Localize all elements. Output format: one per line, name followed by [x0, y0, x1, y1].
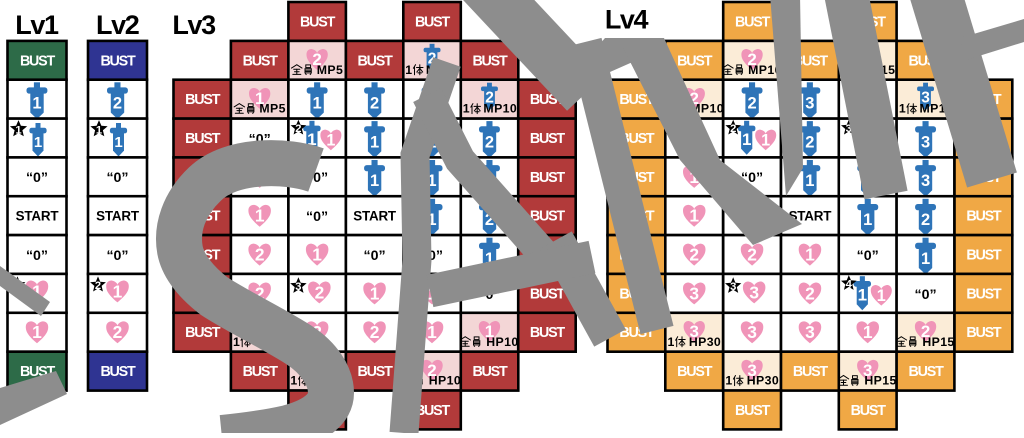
- svg-text:1: 1: [313, 95, 322, 113]
- svg-text:1: 1: [312, 245, 322, 265]
- svg-text:BUST: BUST: [243, 364, 279, 380]
- svg-text:HP10: HP10: [486, 335, 518, 349]
- svg-text:START: START: [16, 209, 60, 224]
- svg-text:1: 1: [34, 134, 42, 151]
- svg-text:3: 3: [805, 95, 814, 113]
- svg-text:BUST: BUST: [358, 364, 394, 380]
- svg-text:1: 1: [689, 206, 699, 226]
- svg-text:BUST: BUST: [793, 364, 829, 380]
- svg-text:3: 3: [749, 282, 759, 302]
- svg-text:HP30: HP30: [747, 374, 779, 388]
- svg-text:1: 1: [326, 131, 335, 149]
- svg-text:BUST: BUST: [472, 364, 508, 380]
- svg-text:1: 1: [463, 102, 470, 116]
- svg-text:2: 2: [805, 133, 814, 151]
- svg-text:BUST: BUST: [966, 248, 1002, 264]
- svg-text:BUST: BUST: [530, 131, 566, 147]
- svg-text:2: 2: [295, 123, 301, 135]
- svg-text:1: 1: [15, 124, 21, 136]
- svg-text:BUST: BUST: [100, 53, 136, 69]
- svg-text:“0”: “0”: [915, 287, 937, 303]
- svg-text:BUST: BUST: [185, 92, 221, 108]
- svg-text:BUST: BUST: [851, 403, 887, 419]
- svg-text:Lv1: Lv1: [15, 10, 59, 40]
- svg-text:BUST: BUST: [966, 286, 1002, 302]
- svg-text:HP30: HP30: [689, 335, 721, 349]
- svg-text:3: 3: [295, 281, 301, 293]
- svg-text:1: 1: [114, 134, 122, 151]
- svg-text:MP10: MP10: [483, 102, 517, 116]
- svg-text:BUST: BUST: [100, 364, 136, 380]
- svg-text:2: 2: [95, 280, 101, 292]
- svg-text:1: 1: [370, 283, 380, 303]
- svg-text:Lv3: Lv3: [172, 10, 216, 40]
- svg-text:1: 1: [863, 322, 873, 342]
- svg-text:3: 3: [689, 283, 699, 303]
- svg-text:HP15: HP15: [922, 335, 954, 349]
- svg-text:2: 2: [255, 245, 265, 265]
- svg-text:BUST: BUST: [909, 364, 945, 380]
- svg-text:“0”: “0”: [106, 248, 128, 264]
- svg-text:BUST: BUST: [735, 14, 771, 30]
- svg-text:“0”: “0”: [857, 248, 879, 264]
- svg-text:2: 2: [113, 322, 123, 342]
- svg-text:BUST: BUST: [243, 53, 279, 69]
- svg-text:1: 1: [32, 95, 41, 113]
- svg-text:2: 2: [315, 282, 325, 302]
- svg-text:START: START: [96, 209, 140, 224]
- svg-text:3: 3: [921, 133, 930, 151]
- svg-text:Lv4: Lv4: [605, 5, 649, 35]
- svg-text:3: 3: [730, 281, 736, 293]
- svg-text:1: 1: [742, 130, 751, 149]
- svg-text:2: 2: [370, 322, 380, 342]
- svg-text:BUST: BUST: [735, 403, 771, 419]
- svg-text:MP5: MP5: [317, 63, 343, 77]
- svg-text:4: 4: [846, 279, 853, 291]
- svg-text:1: 1: [858, 286, 867, 305]
- svg-text:BUST: BUST: [530, 286, 566, 302]
- svg-text:1: 1: [921, 250, 930, 268]
- svg-text:BUST: BUST: [185, 131, 221, 147]
- svg-text:BUST: BUST: [415, 14, 451, 30]
- svg-text:2: 2: [485, 133, 494, 151]
- svg-text:3: 3: [921, 172, 930, 190]
- svg-text:BUST: BUST: [358, 53, 394, 69]
- svg-text:1: 1: [877, 287, 886, 305]
- svg-text:“0”: “0”: [26, 248, 48, 264]
- svg-text:1: 1: [863, 211, 872, 229]
- svg-text:“0”: “0”: [106, 170, 128, 186]
- svg-text:1: 1: [667, 335, 674, 349]
- svg-text:“0”: “0”: [364, 248, 386, 264]
- svg-text:2: 2: [370, 95, 379, 113]
- svg-text:HP10: HP10: [429, 374, 461, 388]
- svg-text:1: 1: [761, 131, 770, 149]
- svg-text:1: 1: [405, 63, 412, 77]
- svg-text:2: 2: [921, 211, 930, 229]
- svg-text:BUST: BUST: [185, 325, 221, 341]
- svg-text:BUST: BUST: [20, 53, 56, 69]
- svg-text:1: 1: [96, 124, 102, 136]
- svg-text:2: 2: [748, 95, 757, 113]
- svg-text:2: 2: [730, 123, 736, 135]
- svg-text:1: 1: [427, 322, 437, 342]
- svg-text:BUST: BUST: [530, 325, 566, 341]
- svg-text:BUST: BUST: [530, 170, 566, 186]
- svg-text:HP15: HP15: [864, 374, 896, 388]
- svg-text:2: 2: [805, 283, 815, 303]
- svg-text:3: 3: [805, 322, 815, 342]
- svg-text:“0”: “0”: [306, 209, 328, 225]
- svg-text:2: 2: [747, 245, 757, 265]
- svg-text:1: 1: [32, 322, 42, 342]
- svg-text:1: 1: [113, 281, 123, 301]
- svg-text:BUST: BUST: [677, 364, 713, 380]
- svg-text:BUST: BUST: [472, 53, 508, 69]
- svg-text:BUST: BUST: [300, 14, 336, 30]
- svg-text:BUST: BUST: [677, 53, 713, 69]
- svg-text:2: 2: [113, 95, 122, 113]
- svg-text:BUST: BUST: [966, 325, 1002, 341]
- svg-text:1: 1: [805, 245, 815, 265]
- svg-text:1: 1: [255, 206, 265, 226]
- svg-text:1: 1: [805, 172, 814, 190]
- svg-text:MP5: MP5: [259, 102, 285, 116]
- svg-text:1: 1: [370, 172, 379, 190]
- svg-text:START: START: [353, 209, 397, 224]
- svg-text:1: 1: [290, 374, 297, 388]
- svg-text:Lv2: Lv2: [96, 10, 139, 40]
- svg-text:1: 1: [899, 102, 906, 116]
- svg-text:BUST: BUST: [966, 209, 1002, 225]
- svg-text:1: 1: [725, 374, 732, 388]
- svg-text:2: 2: [689, 245, 699, 265]
- svg-text:1: 1: [370, 133, 379, 151]
- svg-text:3: 3: [747, 322, 757, 342]
- svg-text:“0”: “0”: [26, 170, 48, 186]
